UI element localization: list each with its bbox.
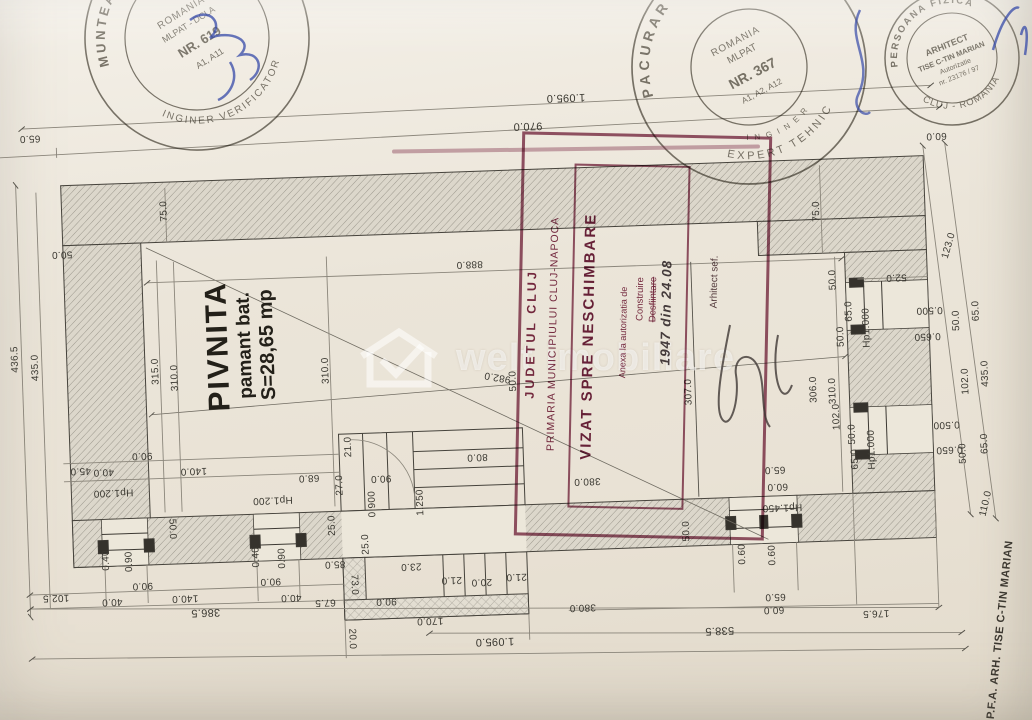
- dim-label: 52.0: [886, 271, 907, 282]
- dim-label: 65.0: [844, 301, 855, 322]
- dim-label: 0.900: [367, 491, 378, 518]
- dim-label: 50.0: [166, 519, 177, 540]
- pen-mark-corner-icon: [985, 0, 1032, 70]
- dim-label: 21.0: [344, 436, 355, 457]
- dim-label: 23.0: [401, 560, 422, 571]
- dim-label: 310.0: [170, 364, 181, 391]
- scanned-plan-page: 65.01.095.0970.060.075.050.0888.075.0123…: [0, 0, 1032, 720]
- dim-label: 102.0: [961, 368, 972, 395]
- dim-label: 80.0: [467, 451, 488, 462]
- stamp-cityhall-title: VIZAT SPRE NESCHIMBARE: [577, 166, 599, 506]
- dim-label: Hp1.200: [93, 486, 133, 497]
- stamp-cityhall-note1: Anexa la autorizatia de: [616, 173, 632, 493]
- dim-label: 40.0: [281, 592, 302, 603]
- dim-label: 90.0: [260, 575, 281, 586]
- dim-label: 65.0: [764, 464, 785, 475]
- dim-label: 68.0: [298, 472, 319, 483]
- dim-label: 538.5: [705, 624, 734, 636]
- dim-label: 1.095.0: [546, 91, 585, 103]
- dim-label: 45.0: [70, 465, 91, 476]
- dim-label: 27.0: [335, 475, 346, 496]
- dim-label: 315.0: [151, 358, 162, 385]
- dim-label: 310.0: [321, 357, 332, 384]
- dim-label: 67.5: [315, 596, 336, 607]
- dim-label: 0.650: [914, 330, 941, 341]
- dim-label: 102.5: [43, 592, 70, 603]
- dim-label: 73.0: [348, 574, 359, 595]
- dim-label: 888.0: [456, 258, 483, 269]
- pen-mark-left-icon: [170, 0, 280, 110]
- dim-label: 435.0: [980, 360, 991, 387]
- dim-label: 50.0: [958, 443, 969, 464]
- dim-label: 65.0: [980, 433, 991, 454]
- dim-label: 21.0: [441, 574, 462, 585]
- dim-label: 1.095.0: [475, 635, 514, 647]
- dim-label: 0.60: [738, 544, 749, 565]
- stamp-cityhall-note2: Construire: [634, 197, 648, 401]
- dim-label: 90.0: [376, 595, 397, 606]
- dim-label: 435.0: [31, 354, 42, 381]
- stamp-cityhall-county: JUDETUL CLUJ: [521, 135, 542, 533]
- dim-label: 140.0: [180, 465, 207, 476]
- dim-label: Hp1.450: [762, 501, 802, 512]
- dim-label: 25.0: [327, 515, 338, 536]
- dim-label: 386.5: [191, 606, 220, 618]
- dim-label: 50.0: [52, 248, 73, 259]
- dim-label: 50.0: [847, 424, 858, 445]
- dim-label: 90.0: [132, 450, 153, 461]
- dim-label: 65.0: [19, 132, 40, 143]
- stamp-cityhall-inner-box: VIZAT SPRE NESCHIMBARE Anexa la autoriza…: [567, 164, 690, 510]
- dim-label: 75.0: [812, 201, 823, 222]
- dim-label: 90.0: [132, 580, 153, 591]
- dim-label: 0.500: [916, 304, 943, 315]
- dim-label: 0.40: [251, 547, 262, 568]
- dim-label: 0.90: [277, 548, 288, 569]
- dim-label: 50.0: [828, 269, 839, 290]
- dim-label: 970.0: [513, 119, 542, 131]
- dim-label: 176.5: [863, 607, 890, 618]
- dim-label: Hp1.000: [861, 308, 872, 348]
- dim-label: 85.0: [324, 558, 345, 569]
- dim-label: 310.0: [828, 378, 839, 405]
- dim-label: 20.0: [471, 576, 492, 587]
- stamp-cityhall-cityname: PRIMARIA MUNICIPIULUI CLUJ-NAPOCA: [544, 135, 563, 533]
- dim-label: Hp1.000: [867, 429, 878, 469]
- dim-label: 60.0: [763, 604, 784, 615]
- dim-label: 65.0: [971, 300, 982, 321]
- dim-label: 65.0: [765, 591, 786, 602]
- dim-label: 0.40: [101, 550, 112, 571]
- dim-label: 40.0: [102, 596, 123, 607]
- dim-label: 20.0: [346, 628, 357, 649]
- dim-label: 436.5: [10, 346, 21, 373]
- dim-label: 21.0: [506, 571, 527, 582]
- dim-label: 0.60: [768, 545, 779, 566]
- dim-label: 0.90: [124, 551, 135, 572]
- dim-label: 90.0: [371, 472, 392, 483]
- dim-label: 65.0: [850, 449, 861, 470]
- dim-label: 380.0: [569, 601, 596, 612]
- pen-mark-center-icon: [840, 0, 900, 130]
- dim-label: 50.0: [836, 326, 847, 347]
- dim-label: 1.250: [415, 489, 426, 516]
- dim-label: Hp1.200: [253, 494, 293, 505]
- dim-label: 170.0: [417, 615, 444, 626]
- dim-label: 102.0: [832, 403, 843, 430]
- dim-label: 306.0: [809, 376, 820, 403]
- dim-label: 60.0: [767, 481, 788, 492]
- room-label: PIVNITA pamant bat. S=28,65 mp: [198, 223, 316, 467]
- dim-label: 50.0: [952, 310, 963, 331]
- dim-label: 40.0: [93, 466, 114, 477]
- signature-mark: [700, 315, 810, 445]
- dim-label: 0.500: [933, 419, 960, 430]
- dim-label: 140.0: [172, 592, 199, 603]
- dim-label: 25.0: [361, 534, 372, 555]
